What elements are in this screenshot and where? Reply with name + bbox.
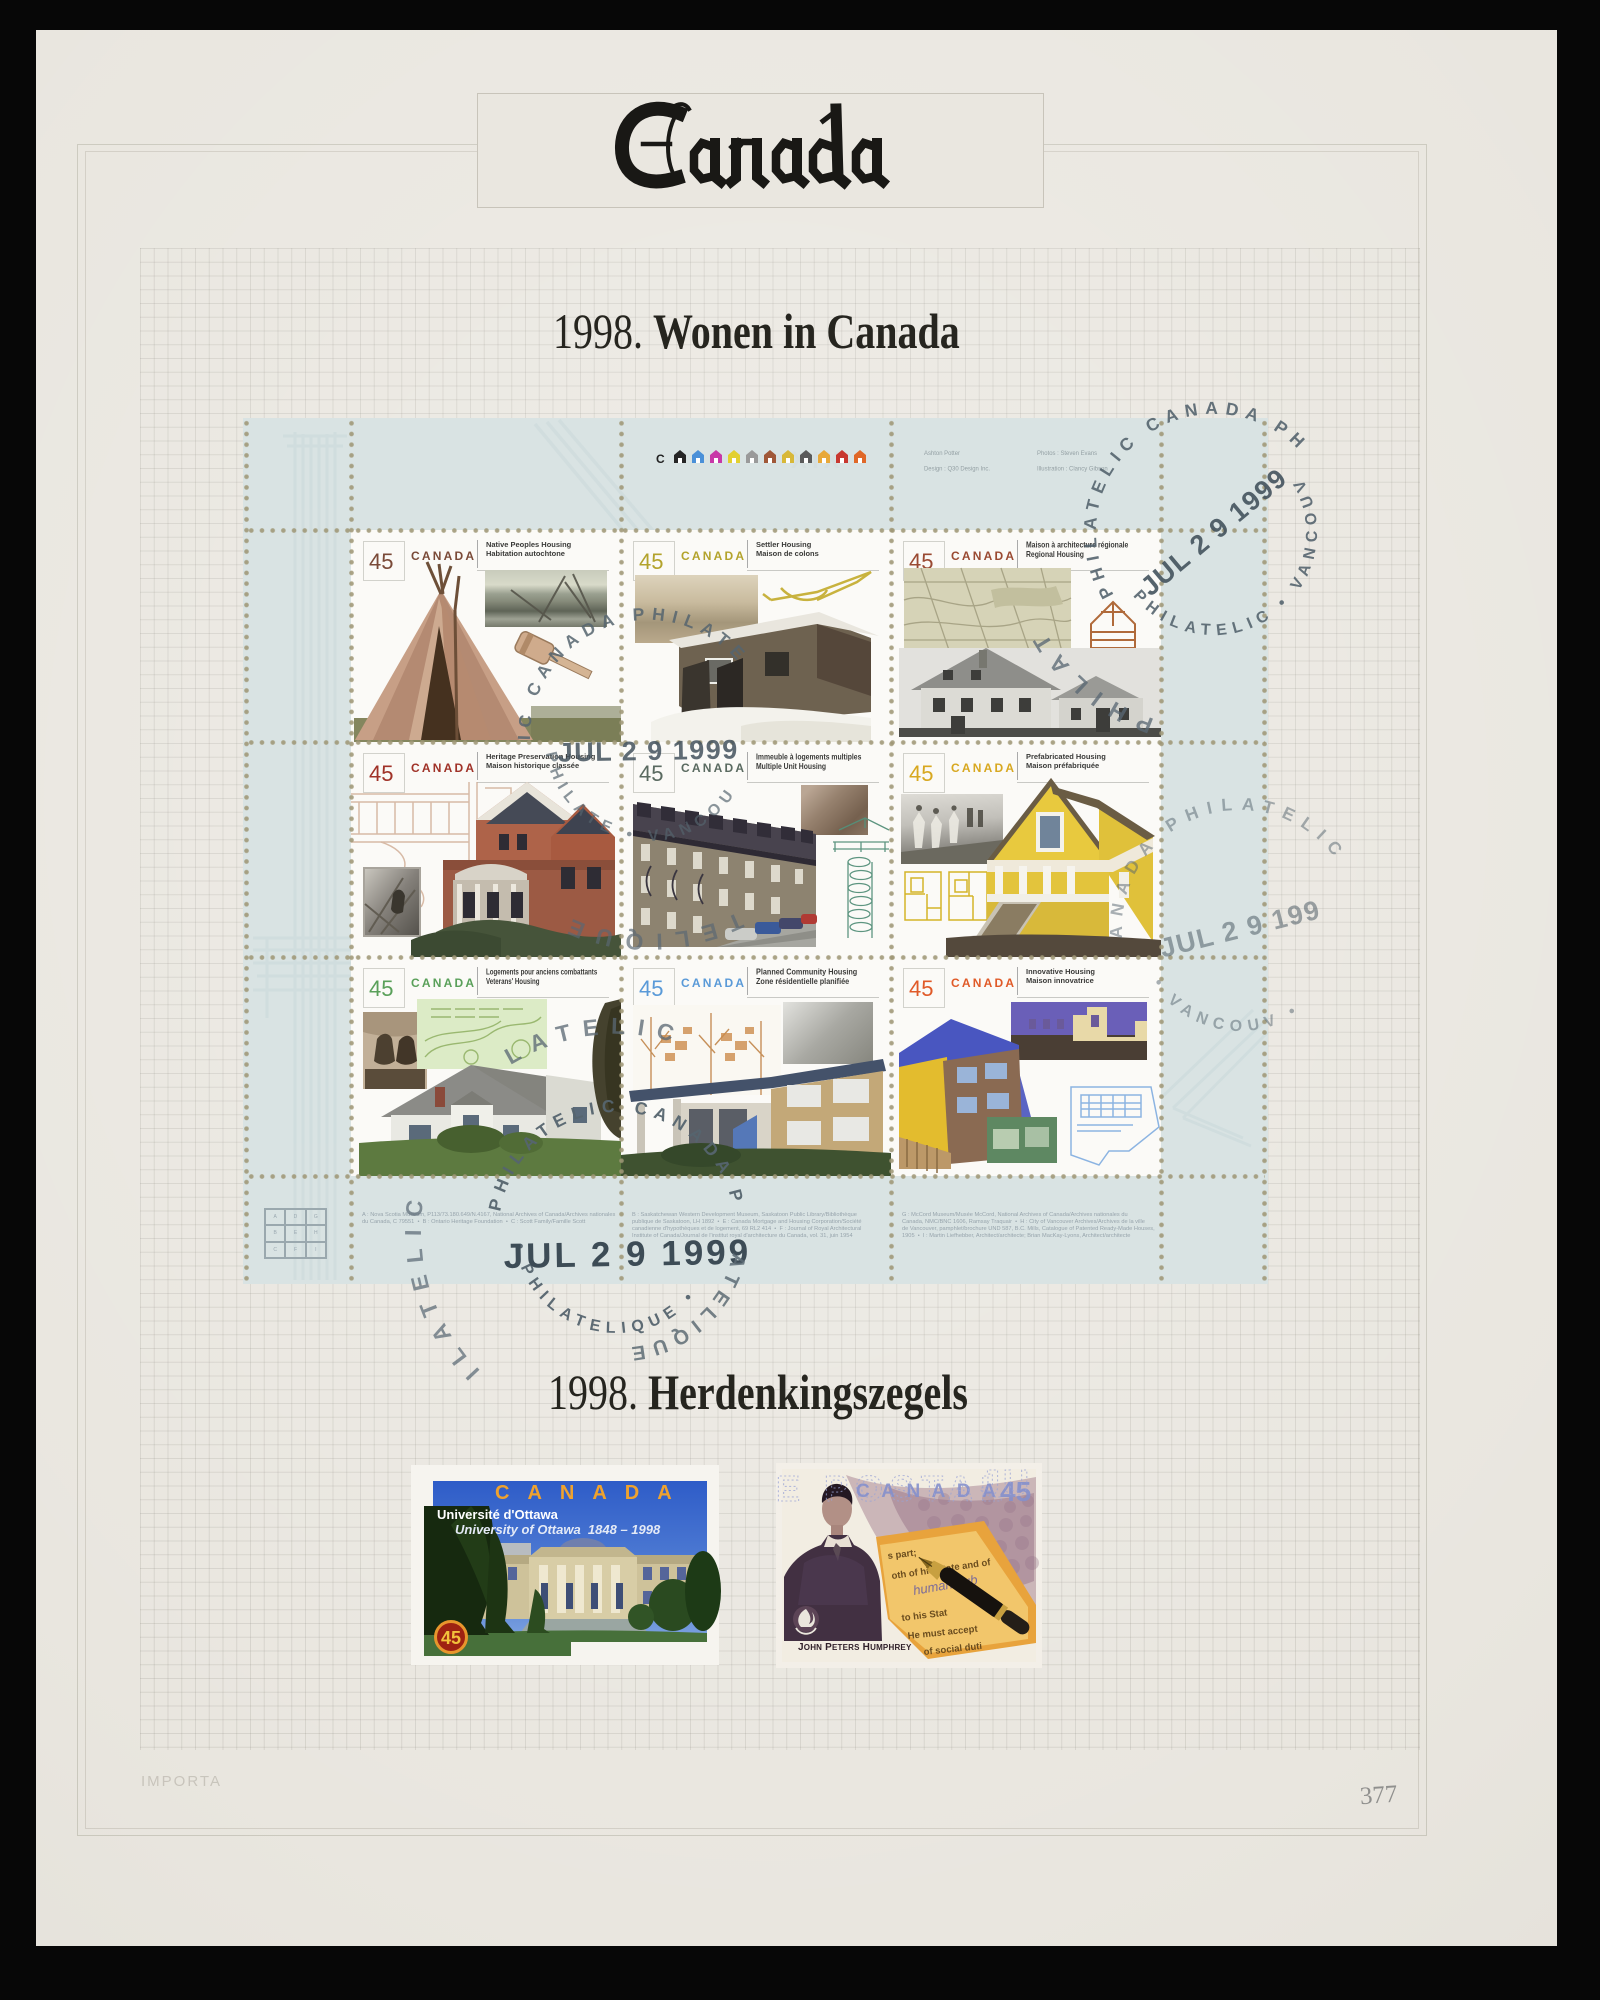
svg-text:JUL 2 9 199: JUL 2 9 199 (1157, 895, 1324, 964)
svg-text:IC CANADA PHILATE: IC CANADA PHILATE (505, 596, 758, 741)
svg-text:JUL 2 9 1999: JUL 2 9 1999 (503, 1233, 751, 1276)
svg-text:JUL 2 9 1999: JUL 2 9 1999 (557, 734, 739, 767)
svg-text:PHILAT: PHILAT (1020, 597, 1164, 764)
svg-text:45: 45 (441, 1628, 461, 1648)
svg-text:TELIQUE: TELIQUE (545, 829, 751, 1023)
svg-text:E POSTAL: E POSTAL (776, 1468, 1009, 1509)
svg-text:LATELIC: LATELIC (498, 987, 695, 1098)
svg-text:JOHN PETERS HUMPHREY: JOHN PETERS HUMPHREY (798, 1642, 912, 1653)
svg-text:JU: JU (980, 1462, 1032, 1503)
svg-text:• VANCOUV •: • VANCOUV • (1148, 953, 1306, 1051)
svg-text:PHILATELIC CANADA P: PHILATELIC CANADA P (484, 1091, 752, 1221)
svg-text:University of Ottawa 1848 – 1: University of Ottawa 1848 – 1998 (455, 1522, 661, 1537)
svg-text:CANADA: CANADA (495, 1482, 690, 1504)
svg-text:ILATELIC: ILATELIC (389, 1178, 487, 1392)
svg-text:JUL 2 9 1999: JUL 2 9 1999 (1135, 462, 1293, 601)
svg-text:Université d'Ottawa: Université d'Ottawa (437, 1507, 559, 1522)
